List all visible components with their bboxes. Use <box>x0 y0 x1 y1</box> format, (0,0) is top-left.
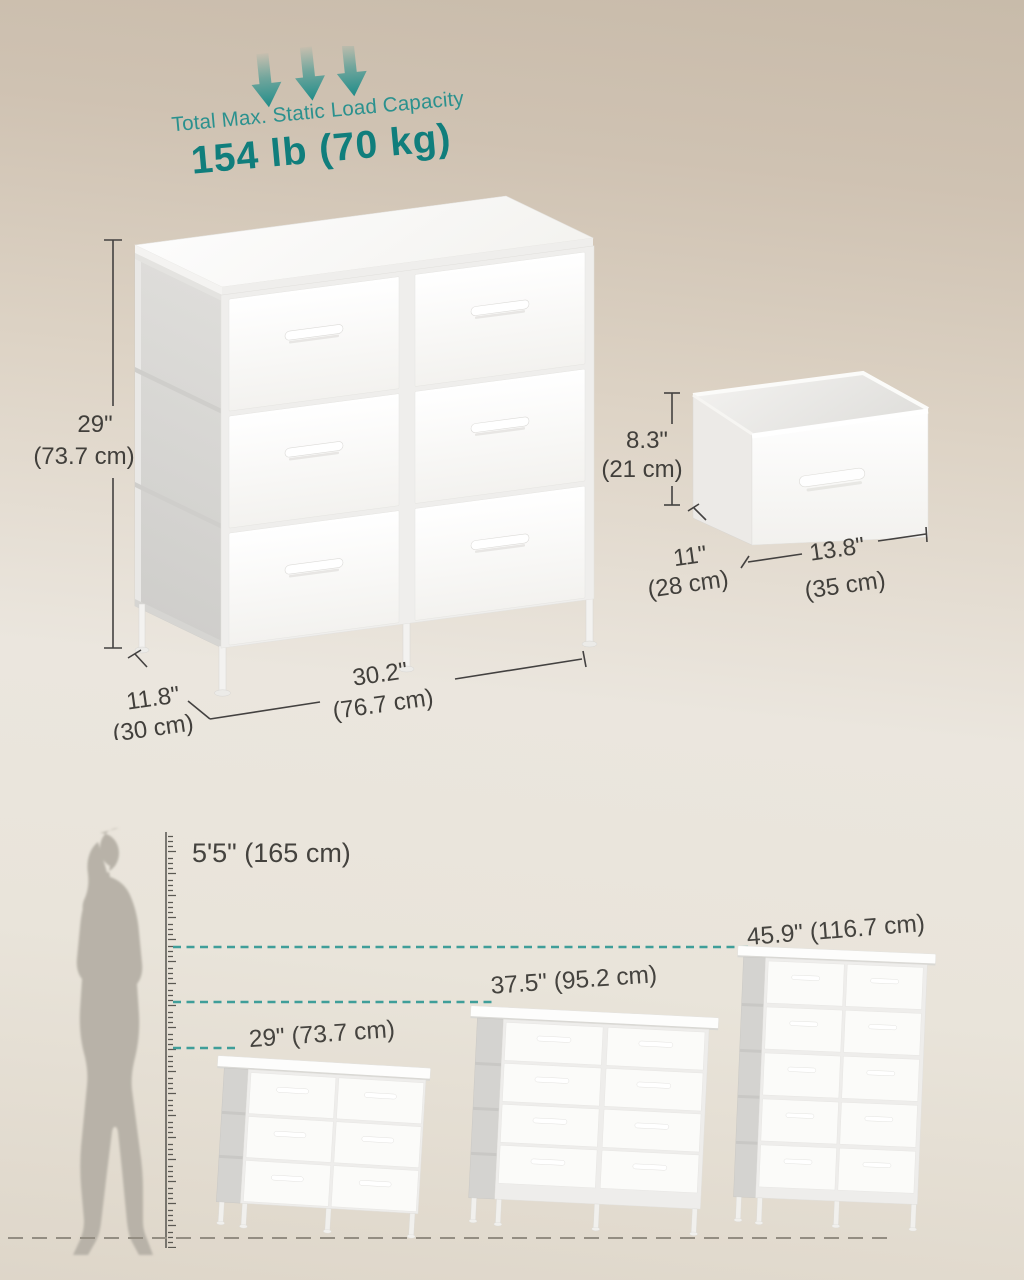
main-dresser-figure: 29" (73.7 cm) 11.8" (30 cm) 30.2" (76.7 … <box>20 180 660 740</box>
size-label-6-drawer: 29" (73.7 cm) <box>248 1016 396 1053</box>
height-dimension: 29" (73.7 cm) <box>33 240 134 648</box>
bin-height-cm-label: (21 cm) <box>601 456 682 483</box>
drawer-bin-figure: 8.3" (21 cm) 11" (28 cm) 13.8" (35 cm) <box>590 360 1020 620</box>
size-label-10-drawer: 45.9" (116.7 cm) <box>746 910 926 951</box>
width-in-label: 30.2" <box>351 657 409 691</box>
comparison-dresser-8 <box>460 1006 718 1237</box>
bin-height-in-label: 8.3" <box>626 427 668 454</box>
comparison-dresser-6 <box>208 1056 431 1239</box>
size-label-8-drawer: 37.5" (95.2 cm) <box>490 961 658 1000</box>
bin-width-cm-label: (35 cm) <box>803 566 887 604</box>
person-height-label: 5'5" (165 cm) <box>192 838 351 868</box>
load-capacity-callout: Total Max. Static Load Capacity 154 lb (… <box>147 85 492 188</box>
product-dimensions-infographic: Total Max. Static Load Capacity 154 lb (… <box>0 0 1024 1280</box>
size-comparison-section: 5'5" (165 cm) 29" (73.7 cm) 37.5" (95.2 … <box>0 790 1024 1280</box>
width-dimension: 30.2" (76.7 cm) <box>188 651 586 725</box>
main-dresser-side-panel <box>135 253 222 648</box>
down-arrow-icon <box>292 46 327 102</box>
depth-dimension: 11.8" (30 cm) <box>111 650 195 740</box>
down-arrow-icon <box>334 46 369 98</box>
width-cm-label: (76.7 cm) <box>331 684 435 725</box>
depth-cm-label: (30 cm) <box>111 709 195 740</box>
bin-depth-cm-label: (28 cm) <box>646 565 730 603</box>
height-cm-label: (73.7 cm) <box>33 443 134 470</box>
depth-in-label: 11.8" <box>125 681 182 715</box>
bin-depth-in-label: 11" <box>672 541 709 572</box>
comparison-dresser-10 <box>726 946 935 1232</box>
person-silhouette <box>73 828 153 1255</box>
drawer-bin-graphic <box>693 373 928 545</box>
height-ruler <box>166 832 177 1248</box>
height-in-label: 29" <box>77 411 112 438</box>
bin-height-dimension: 8.3" (21 cm) <box>601 393 682 505</box>
down-arrow-icon <box>248 52 283 109</box>
main-dresser-front <box>221 246 594 648</box>
